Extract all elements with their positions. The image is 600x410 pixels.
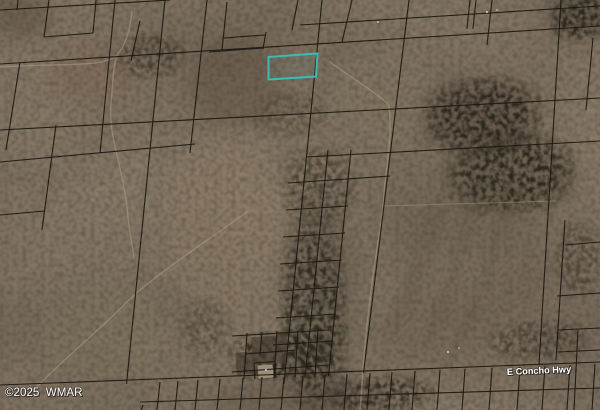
svg-text:©2025 WMAR: ©2025 WMAR	[5, 386, 82, 399]
